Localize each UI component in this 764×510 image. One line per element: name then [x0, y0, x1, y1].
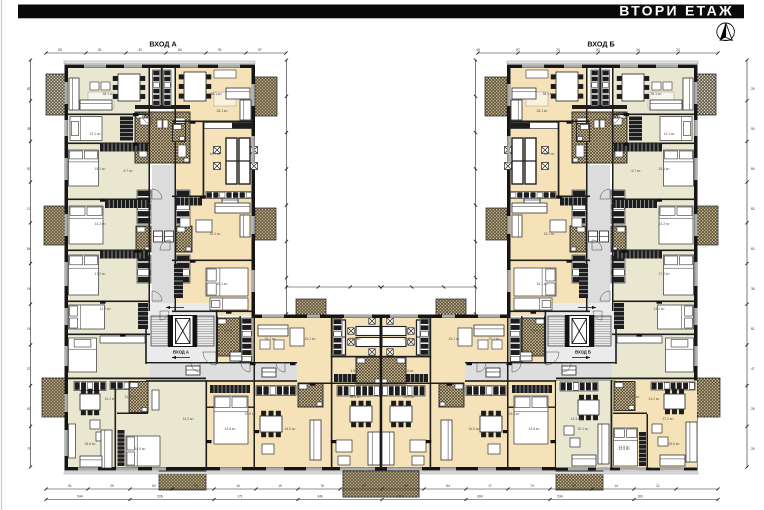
- svg-text:14.5 м²: 14.5 м²: [618, 447, 630, 451]
- svg-text:63: 63: [27, 407, 31, 411]
- svg-text:56: 56: [404, 484, 408, 488]
- svg-text:74: 74: [530, 484, 534, 488]
- svg-text:20.1 м²: 20.1 м²: [264, 337, 276, 341]
- svg-text:28: 28: [751, 407, 755, 411]
- svg-text:16.7 м²: 16.7 м²: [209, 152, 221, 156]
- svg-text:16.0 м²: 16.0 м²: [284, 427, 296, 431]
- svg-text:15.1 м²: 15.1 м²: [209, 232, 221, 236]
- svg-text:14.3 м²: 14.3 м²: [570, 417, 582, 421]
- svg-text:84: 84: [27, 247, 31, 251]
- svg-text:14: 14: [614, 484, 618, 488]
- svg-text:28.1 м²: 28.1 м²: [536, 109, 548, 113]
- svg-text:15.0 м²: 15.0 м²: [244, 412, 256, 416]
- svg-text:38.0 м²: 38.0 м²: [349, 395, 361, 399]
- svg-text:31.2 м²: 31.2 м²: [648, 397, 660, 401]
- svg-text:90: 90: [751, 127, 755, 131]
- svg-text:15: 15: [27, 327, 31, 331]
- svg-text:81: 81: [98, 48, 102, 52]
- svg-text:19: 19: [278, 484, 282, 488]
- svg-text:18.6 м²: 18.6 м²: [668, 442, 680, 446]
- svg-text:17: 17: [27, 207, 31, 211]
- svg-text:31.2 м²: 31.2 м²: [124, 395, 136, 399]
- svg-text:18.6 м²: 18.6 м²: [84, 442, 96, 446]
- svg-text:12.1 м²: 12.1 м²: [663, 132, 675, 136]
- svg-text:16: 16: [236, 484, 240, 488]
- svg-text:22: 22: [362, 484, 366, 488]
- svg-text:17.2 м²: 17.2 м²: [94, 272, 106, 276]
- svg-text:14.2 м²: 14.2 м²: [658, 222, 670, 226]
- svg-text:17: 17: [488, 484, 492, 488]
- svg-text:171: 171: [237, 495, 243, 499]
- svg-text:38.1 м²: 38.1 м²: [102, 92, 114, 96]
- svg-text:60: 60: [751, 247, 755, 251]
- svg-text:38.1 м²: 38.1 м²: [210, 92, 222, 96]
- svg-text:9.2 м²: 9.2 м²: [155, 102, 165, 106]
- svg-text:51: 51: [68, 484, 72, 488]
- svg-text:17.5 м²: 17.5 м²: [403, 337, 415, 341]
- svg-text:160: 160: [637, 495, 643, 499]
- svg-text:14.5 м²: 14.5 м²: [224, 427, 236, 431]
- svg-text:3.5 м²: 3.5 м²: [531, 329, 541, 333]
- svg-text:ВХОД А: ВХОД А: [149, 40, 176, 49]
- svg-text:84: 84: [446, 484, 450, 488]
- svg-text:16.1 м²: 16.1 м²: [536, 282, 548, 286]
- svg-text:37.2 м²: 37.2 м²: [662, 417, 674, 421]
- svg-text:47: 47: [751, 367, 755, 371]
- svg-text:90: 90: [27, 167, 31, 171]
- svg-text:ВХОД Б: ВХОД Б: [587, 40, 614, 49]
- svg-text:84: 84: [178, 48, 182, 52]
- svg-text:14.5 м²: 14.5 м²: [528, 427, 540, 431]
- svg-text:16.1 м²: 16.1 м²: [216, 282, 228, 286]
- svg-text:79: 79: [27, 447, 31, 451]
- svg-text:93: 93: [194, 484, 198, 488]
- svg-text:544: 544: [77, 495, 83, 499]
- svg-text:25: 25: [751, 447, 755, 451]
- svg-text:84: 84: [751, 167, 755, 171]
- svg-text:4.5 м²: 4.5 м²: [404, 369, 414, 373]
- svg-text:83: 83: [596, 48, 600, 52]
- svg-text:33: 33: [138, 48, 142, 52]
- svg-text:13.2 м²: 13.2 м²: [99, 307, 111, 311]
- svg-text:15.1 м²: 15.1 м²: [543, 232, 555, 236]
- svg-text:49: 49: [476, 48, 480, 52]
- svg-text:38.0 м²: 38.0 м²: [403, 395, 415, 399]
- svg-text:97: 97: [516, 48, 520, 52]
- svg-text:17.5 м²: 17.5 м²: [349, 337, 361, 341]
- svg-text:21: 21: [656, 484, 660, 488]
- svg-text:16.7 м²: 16.7 м²: [543, 152, 555, 156]
- svg-text:38: 38: [751, 287, 755, 291]
- svg-text:6.7 м²: 6.7 м²: [123, 169, 133, 173]
- svg-text:38.1 м²: 38.1 м²: [542, 92, 554, 96]
- svg-text:29: 29: [110, 484, 114, 488]
- svg-text:13.2 м²: 13.2 м²: [653, 307, 665, 311]
- svg-text:34: 34: [636, 48, 640, 52]
- svg-text:57: 57: [258, 48, 262, 52]
- svg-text:15.1 м²: 15.1 м²: [658, 167, 670, 171]
- svg-text:6.7 м²: 6.7 м²: [631, 169, 641, 173]
- svg-text:3.5 м²: 3.5 м²: [223, 329, 233, 333]
- svg-text:23.1 м²: 23.1 м²: [304, 337, 316, 341]
- svg-text:31.2 м²: 31.2 м²: [628, 395, 640, 399]
- svg-text:23: 23: [556, 48, 560, 52]
- svg-text:ВТОРИ ЕТАЖ: ВТОРИ ЕТАЖ: [619, 3, 734, 19]
- svg-text:20.1 м²: 20.1 м²: [488, 337, 500, 341]
- svg-text:82: 82: [27, 87, 31, 91]
- svg-text:6.7 м²: 6.7 м²: [599, 117, 609, 121]
- svg-text:81: 81: [751, 327, 755, 331]
- svg-text:ВХОД Б: ВХОД Б: [575, 350, 591, 355]
- svg-text:25: 25: [751, 87, 755, 91]
- svg-text:38.1 м²: 38.1 м²: [650, 92, 662, 96]
- svg-text:30.1 м²: 30.1 м²: [577, 427, 589, 431]
- svg-text:16: 16: [27, 287, 31, 291]
- svg-text:17.2 м²: 17.2 м²: [658, 272, 670, 276]
- svg-text:14.3 м²: 14.3 м²: [182, 417, 194, 421]
- svg-text:16.0 м²: 16.0 м²: [468, 427, 480, 431]
- svg-text:9.2 м²: 9.2 м²: [599, 102, 609, 106]
- svg-text:192: 192: [397, 495, 403, 499]
- svg-text:37: 37: [572, 484, 576, 488]
- svg-text:27: 27: [27, 367, 31, 371]
- svg-text:38: 38: [27, 127, 31, 131]
- svg-text:31.2 м²: 31.2 м²: [104, 397, 116, 401]
- svg-text:14.5 м²: 14.5 м²: [134, 447, 146, 451]
- svg-text:528: 528: [157, 495, 163, 499]
- svg-text:ВХОД А: ВХОД А: [173, 350, 189, 355]
- svg-text:664: 664: [477, 495, 483, 499]
- svg-text:83: 83: [751, 207, 755, 211]
- svg-text:6.7 м²: 6.7 м²: [155, 117, 165, 121]
- svg-text:534: 534: [557, 495, 563, 499]
- svg-text:23.1 м²: 23.1 м²: [448, 337, 460, 341]
- svg-text:78: 78: [320, 484, 324, 488]
- svg-text:346: 346: [317, 495, 323, 499]
- svg-text:60: 60: [152, 484, 156, 488]
- svg-text:83: 83: [58, 48, 62, 52]
- svg-text:15.0 м²: 15.0 м²: [508, 412, 520, 416]
- svg-text:14.2 м²: 14.2 м²: [94, 222, 106, 226]
- svg-text:15.1 м²: 15.1 м²: [94, 167, 106, 171]
- svg-text:28.1 м²: 28.1 м²: [216, 109, 228, 113]
- svg-text:22: 22: [676, 48, 680, 52]
- svg-text:91: 91: [218, 48, 222, 52]
- svg-text:12.1 м²: 12.1 м²: [89, 132, 101, 136]
- svg-text:4.5 м²: 4.5 м²: [350, 369, 360, 373]
